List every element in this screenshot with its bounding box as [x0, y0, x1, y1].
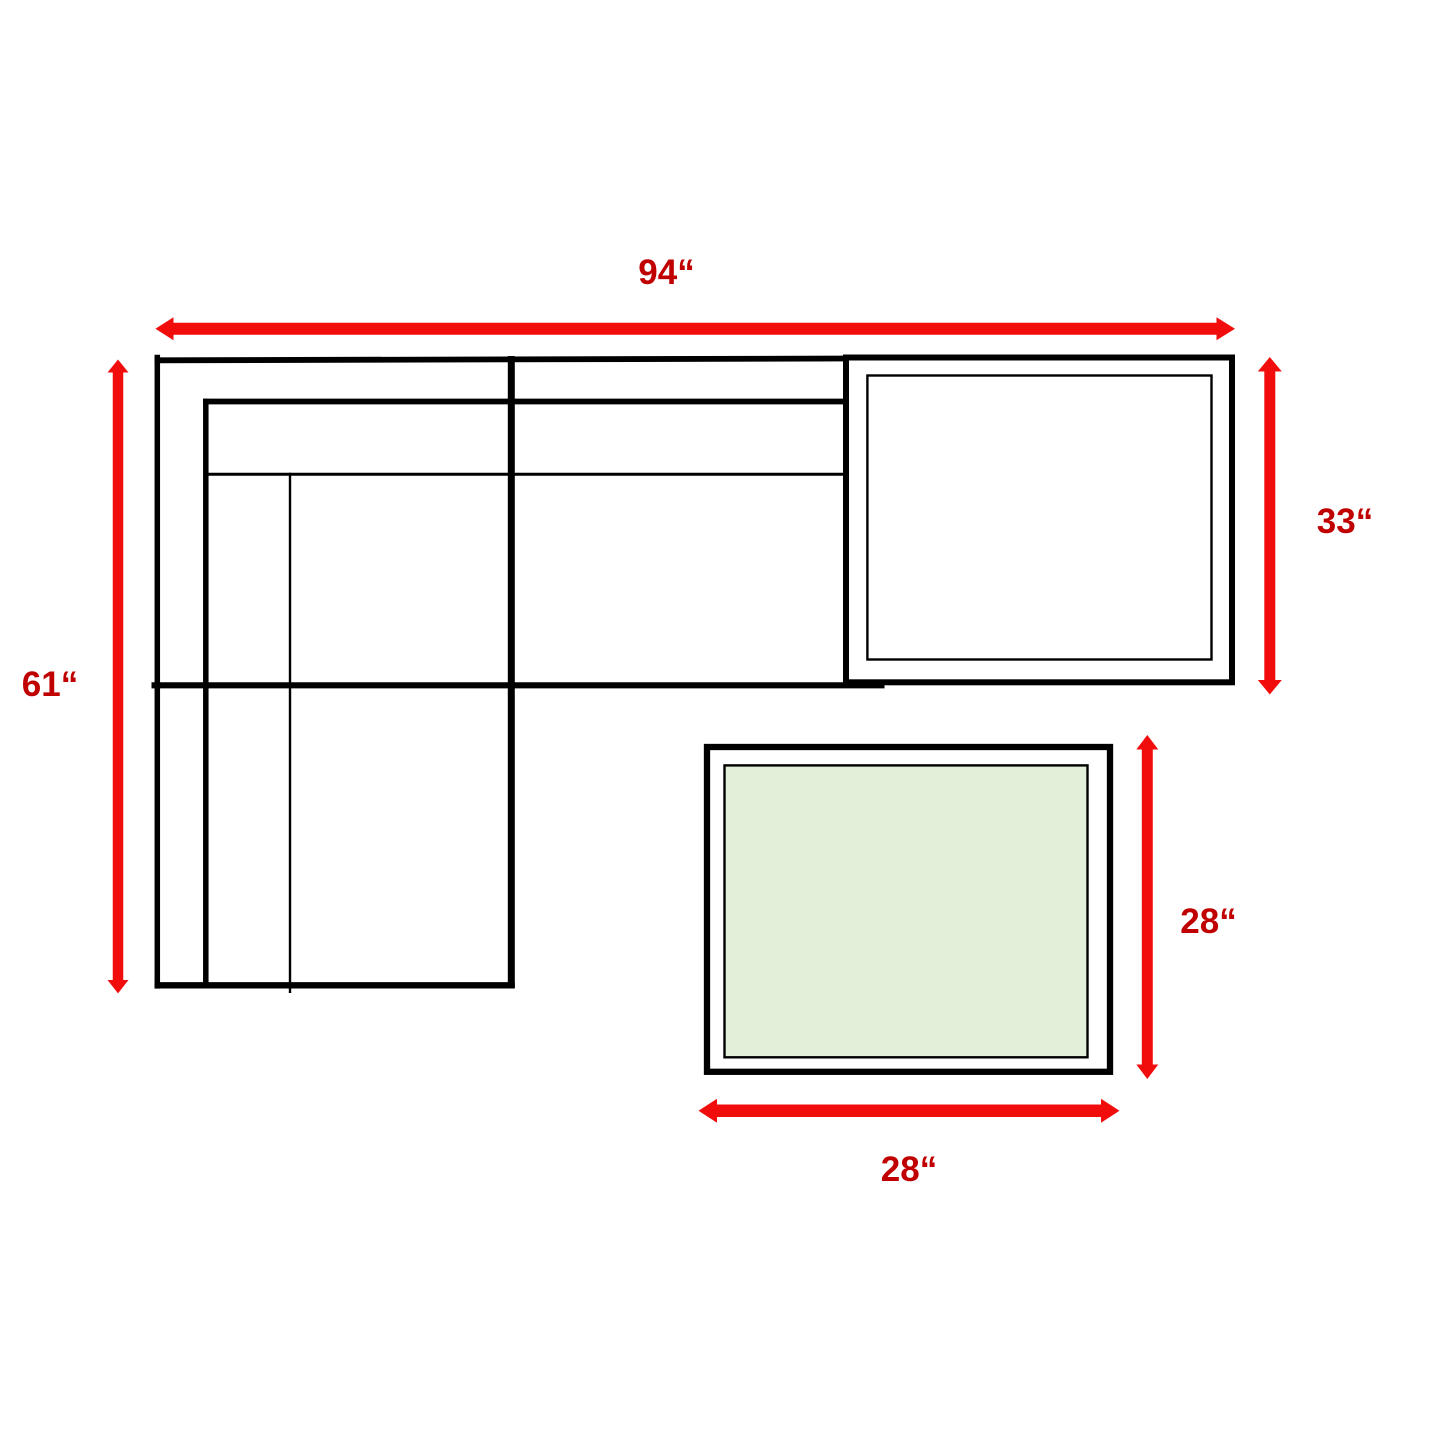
svg-text:94“: 94“ [638, 253, 694, 292]
svg-text:28“: 28“ [881, 1150, 937, 1189]
svg-text:28“: 28“ [1180, 902, 1236, 941]
svg-text:61“: 61“ [22, 665, 78, 704]
svg-text:33“: 33“ [1317, 502, 1373, 541]
